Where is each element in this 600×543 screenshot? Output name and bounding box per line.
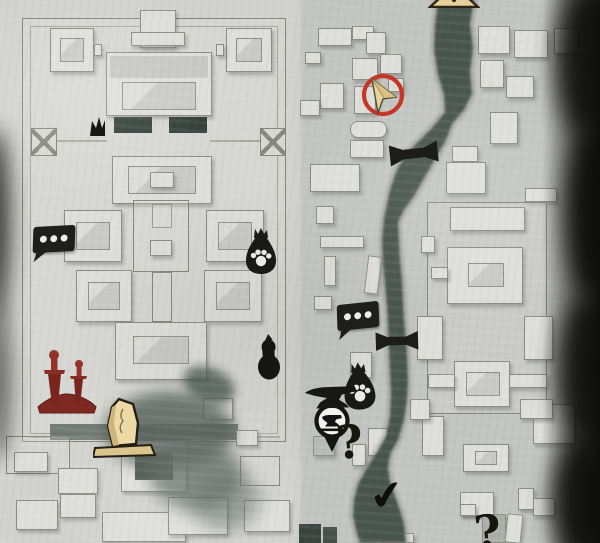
building <box>350 140 384 158</box>
courtyard-grove <box>114 117 152 133</box>
anvil-icon <box>302 383 359 411</box>
stele-top-icon <box>428 0 480 8</box>
axis-corridor <box>152 272 172 322</box>
compound-main-roof <box>468 263 504 287</box>
building <box>236 430 258 446</box>
building <box>382 533 414 543</box>
building <box>520 399 553 419</box>
south-hall-roof <box>133 336 189 364</box>
checkmark-glyph: ✔ <box>367 471 407 521</box>
unknown-location-marker-clipped[interactable]: ? <box>472 508 503 543</box>
building <box>310 164 360 192</box>
speech-bubble-icon: ●●● <box>33 225 76 253</box>
building <box>300 100 320 116</box>
southeast-pavilion-roof <box>216 282 250 310</box>
building <box>368 428 388 456</box>
player-position-marker[interactable] <box>360 72 406 122</box>
southwest-pavilion-roof <box>88 282 120 310</box>
game-map[interactable]: ●●● ●●● <box>0 0 600 543</box>
assassination-marker[interactable] <box>35 347 99 421</box>
red-swords-icon <box>35 347 99 417</box>
compound-west-tower <box>417 316 443 360</box>
pavilion-roof <box>236 38 262 62</box>
cross-tower <box>31 128 57 156</box>
wall-nub <box>216 44 224 56</box>
question-mark-glyph: ? <box>472 504 504 543</box>
wall-nub <box>94 44 102 56</box>
building <box>168 497 228 535</box>
grand-hall-eave <box>110 56 208 78</box>
building <box>14 452 48 472</box>
building <box>316 206 334 224</box>
bridge-marker[interactable] <box>374 329 421 357</box>
central-terrace <box>133 200 189 272</box>
building <box>240 456 280 486</box>
building <box>324 256 336 286</box>
crown-icon <box>89 116 106 137</box>
building <box>366 32 386 54</box>
loot-bag-marker[interactable] <box>243 228 278 280</box>
blacksmith-anvil-marker[interactable] <box>302 383 359 415</box>
building <box>58 468 98 494</box>
shaded-building <box>323 527 337 543</box>
grand-hall-roof <box>122 82 196 110</box>
pavilion-roof <box>60 38 84 62</box>
building <box>505 513 524 543</box>
building <box>554 28 578 54</box>
dialogue-marker[interactable]: ●●● <box>337 301 380 331</box>
building <box>478 26 510 54</box>
building <box>244 500 290 532</box>
stele-icon <box>93 396 159 460</box>
building <box>203 398 233 420</box>
building <box>514 30 548 58</box>
hall-lantern <box>150 172 174 188</box>
gourd-marker[interactable] <box>252 333 286 387</box>
building <box>320 83 344 109</box>
dialogue-dots: ●●● <box>37 234 70 245</box>
shaded-building <box>299 524 321 543</box>
building <box>60 494 96 518</box>
stele-marker-clipped[interactable] <box>428 0 480 12</box>
player-arrow-icon <box>360 72 406 118</box>
terrace-shrine <box>150 240 172 256</box>
wall-gatehouse <box>421 236 435 253</box>
building <box>305 52 321 64</box>
north-gate-base <box>131 32 185 46</box>
wall-segment <box>210 140 260 142</box>
unknown-location-marker[interactable]: ? <box>334 418 365 466</box>
building <box>16 500 58 530</box>
building <box>525 188 557 202</box>
west-pavilion-roof <box>76 222 110 250</box>
building <box>446 162 486 194</box>
stele-marker[interactable] <box>93 396 159 464</box>
paw-bag-icon <box>243 228 278 276</box>
courtyard-grove <box>169 117 207 133</box>
building <box>410 399 430 420</box>
building <box>506 76 534 98</box>
compound-corridor <box>431 267 448 279</box>
dialogue-dots: ●●● <box>341 310 374 322</box>
building <box>380 54 402 74</box>
building <box>480 60 504 88</box>
speech-bubble-icon: ●●● <box>337 301 380 331</box>
hall-roof <box>475 451 497 465</box>
gourd-icon <box>252 333 285 383</box>
building <box>533 498 555 516</box>
bridge-marker[interactable] <box>388 138 441 172</box>
completed-objective-marker[interactable]: ✔ <box>367 474 406 518</box>
barrel-roof-building <box>350 121 387 138</box>
question-mark-glyph: ? <box>334 414 366 470</box>
bridge-icon <box>388 138 440 168</box>
compound-corridor <box>428 374 455 388</box>
dialogue-marker[interactable]: ●●● <box>33 225 76 253</box>
building <box>490 112 518 144</box>
cross-tower <box>260 128 286 156</box>
building <box>422 416 444 456</box>
compound-corridor <box>509 374 547 388</box>
building <box>318 28 352 46</box>
building <box>518 488 534 510</box>
small-crown-marker[interactable] <box>89 116 106 141</box>
building <box>314 296 332 310</box>
bridge-icon <box>374 329 421 353</box>
compound-south-roof <box>466 372 500 396</box>
compound-north-hall <box>450 207 525 231</box>
building <box>452 146 478 162</box>
district-seam <box>291 0 303 543</box>
compound-east-tower <box>524 316 553 360</box>
building <box>320 236 364 248</box>
